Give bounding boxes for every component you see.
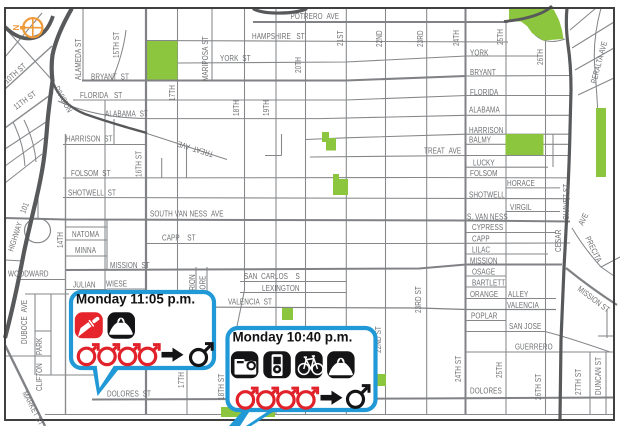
svg-text:FLORIDA ST: FLORIDA ST (80, 90, 123, 100)
svg-text:26TH: 26TH (535, 49, 545, 65)
svg-text:24TH ST: 24TH ST (453, 355, 463, 382)
svg-text:CLIFTON: CLIFTON (34, 363, 44, 391)
svg-text:17TH: 17TH (176, 372, 186, 388)
svg-text:CAPP ST: CAPP ST (162, 233, 196, 243)
svg-text:PARK: PARK (34, 338, 44, 355)
svg-text:CAPP: CAPP (472, 234, 490, 244)
svg-text:BARTLETT: BARTLETT (472, 278, 506, 288)
svg-text:18TH: 18TH (231, 100, 241, 116)
svg-text:ALAMEDA ST: ALAMEDA ST (73, 38, 83, 80)
svg-text:S. VAN NESS: S. VAN NESS (467, 212, 508, 222)
svg-text:MISSION: MISSION (470, 256, 498, 266)
svg-text:MINNA: MINNA (75, 245, 96, 255)
svg-text:TREAT AVE: TREAT AVE (424, 146, 461, 156)
svg-text:BRYANT ST: BRYANT ST (91, 72, 129, 82)
svg-text:22ND: 22ND (374, 30, 384, 47)
svg-text:18TH ST: 18TH ST (216, 373, 226, 400)
svg-text:OSAGE: OSAGE (472, 267, 495, 277)
svg-text:VALENCIA: VALENCIA (507, 300, 539, 310)
svg-text:LILAC: LILAC (472, 245, 491, 255)
svg-text:CYPRESS: CYPRESS (472, 222, 503, 232)
svg-text:CESAR: CESAR (553, 230, 563, 252)
svg-text:CHAVEZ ST: CHAVEZ ST (561, 183, 571, 220)
svg-text:VALENCIA ST: VALENCIA ST (228, 297, 272, 307)
svg-text:23RD: 23RD (415, 30, 425, 47)
svg-text:LUCKY: LUCKY (473, 158, 495, 168)
svg-text:MARIPOSA ST: MARIPOSA ST (200, 36, 210, 81)
svg-text:YORK: YORK (470, 48, 488, 58)
svg-text:14TH: 14TH (55, 232, 65, 248)
svg-text:GUERRERO: GUERRERO (515, 342, 553, 352)
svg-text:ALABAMA: ALABAMA (469, 105, 500, 115)
svg-text:POTRERO AVE: POTRERO AVE (291, 11, 340, 21)
svg-text:HORACE: HORACE (507, 178, 535, 188)
svg-text:16TH ST: 16TH ST (134, 150, 144, 177)
svg-text:ALLEY: ALLEY (508, 289, 528, 299)
svg-text:YORK ST: YORK ST (220, 53, 251, 63)
svg-text:FOLSOM: FOLSOM (470, 168, 498, 178)
svg-text:17TH: 17TH (167, 85, 177, 101)
svg-text:DOLORES ST: DOLORES ST (107, 389, 151, 399)
svg-text:26TH ST: 26TH ST (533, 373, 543, 400)
svg-text:25TH: 25TH (494, 362, 504, 378)
svg-text:BALMY: BALMY (469, 135, 491, 145)
svg-text:VIRGIL: VIRGIL (510, 202, 532, 212)
svg-text:23RD ST: 23RD ST (413, 286, 423, 313)
svg-text:SAN CARLOS S: SAN CARLOS S (244, 271, 300, 281)
svg-text:N: N (12, 25, 21, 31)
svg-text:27TH ST: 27TH ST (573, 368, 583, 395)
svg-text:DOLORES: DOLORES (470, 386, 502, 396)
svg-text:Monday 10:40 p.m.: Monday 10:40 p.m. (233, 330, 353, 345)
svg-text:HARRISON ST: HARRISON ST (66, 134, 113, 144)
svg-text:JULIAN: JULIAN (73, 280, 96, 290)
svg-text:15TH ST: 15TH ST (111, 31, 121, 58)
svg-text:ORANGE: ORANGE (470, 289, 498, 299)
svg-text:24TH: 24TH (451, 30, 461, 46)
svg-text:MISSION ST: MISSION ST (110, 260, 150, 270)
svg-text:SHOTWELL: SHOTWELL (469, 190, 505, 200)
svg-text:SHOTWELL ST: SHOTWELL ST (68, 188, 116, 198)
svg-text:DUNCAN ST: DUNCAN ST (593, 357, 603, 395)
svg-text:DUBOCE AVE: DUBOCE AVE (19, 300, 29, 344)
svg-text:NATOMA: NATOMA (72, 229, 99, 239)
svg-text:SOUTH VAN NESS AVE: SOUTH VAN NESS AVE (150, 209, 224, 219)
svg-text:FLORIDA: FLORIDA (470, 87, 498, 97)
svg-text:19TH: 19TH (261, 100, 271, 116)
svg-text:BRYANT: BRYANT (470, 67, 496, 77)
svg-text:POPLAR: POPLAR (471, 311, 497, 321)
svg-text:ALABAMA ST: ALABAMA ST (105, 109, 148, 119)
svg-text:WIESE: WIESE (106, 279, 127, 289)
svg-text:FOLSOM ST: FOLSOM ST (71, 168, 111, 178)
svg-text:Monday 11:05 p.m.: Monday 11:05 p.m. (76, 292, 195, 307)
svg-text:SAN JOSE: SAN JOSE (509, 321, 541, 331)
svg-text:25TH: 25TH (495, 29, 505, 45)
svg-text:21ST: 21ST (335, 30, 345, 46)
svg-text:LEXINGTON: LEXINGTON (262, 283, 300, 293)
svg-text:WOODWARD: WOODWARD (8, 269, 49, 279)
svg-text:20TH: 20TH (293, 57, 303, 73)
svg-text:HAMPSHIRE ST: HAMPSHIRE ST (252, 31, 305, 41)
